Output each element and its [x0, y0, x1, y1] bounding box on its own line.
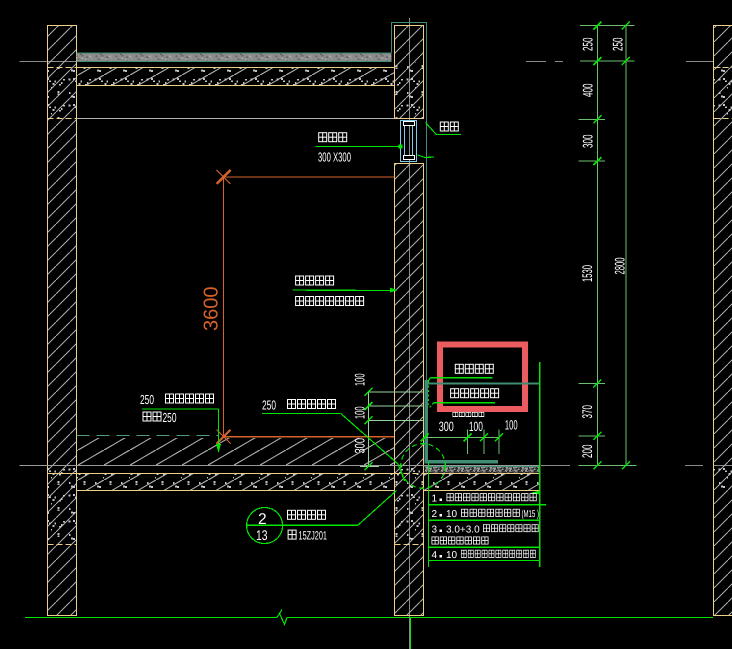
svg-text:400: 400 — [580, 83, 596, 97]
svg-text:300 X300: 300 X300 — [318, 150, 351, 165]
svg-text:250: 250 — [610, 37, 626, 51]
svg-text:100: 100 — [469, 419, 483, 434]
svg-text:250: 250 — [140, 392, 154, 407]
svg-text:10: 10 — [446, 509, 458, 520]
svg-text:15ZJ201: 15ZJ201 — [299, 529, 328, 543]
svg-text:300: 300 — [580, 134, 596, 148]
svg-text:300: 300 — [352, 438, 368, 454]
svg-text:(M15 ): (M15 ) — [522, 509, 540, 520]
svg-text:100: 100 — [505, 418, 518, 433]
svg-text:250: 250 — [580, 37, 596, 51]
svg-text:4: 4 — [432, 550, 438, 561]
svg-text:3: 3 — [432, 525, 438, 536]
svg-text:3600: 3600 — [200, 287, 222, 332]
svg-text:300: 300 — [439, 419, 454, 434]
svg-text:13: 13 — [256, 527, 268, 543]
svg-text:1530: 1530 — [579, 265, 595, 282]
svg-text:1: 1 — [432, 494, 438, 505]
svg-text:370: 370 — [579, 405, 595, 419]
svg-text:250: 250 — [163, 410, 177, 425]
svg-text:3.0+3.0: 3.0+3.0 — [446, 525, 480, 536]
svg-text:2: 2 — [258, 511, 267, 528]
svg-text:250: 250 — [262, 398, 276, 413]
svg-text:100: 100 — [352, 373, 368, 386]
svg-text:200: 200 — [579, 444, 595, 458]
svg-text:2800: 2800 — [612, 257, 628, 274]
svg-text:10: 10 — [446, 550, 458, 561]
svg-text:2: 2 — [432, 509, 438, 520]
svg-text:100: 100 — [352, 406, 368, 419]
